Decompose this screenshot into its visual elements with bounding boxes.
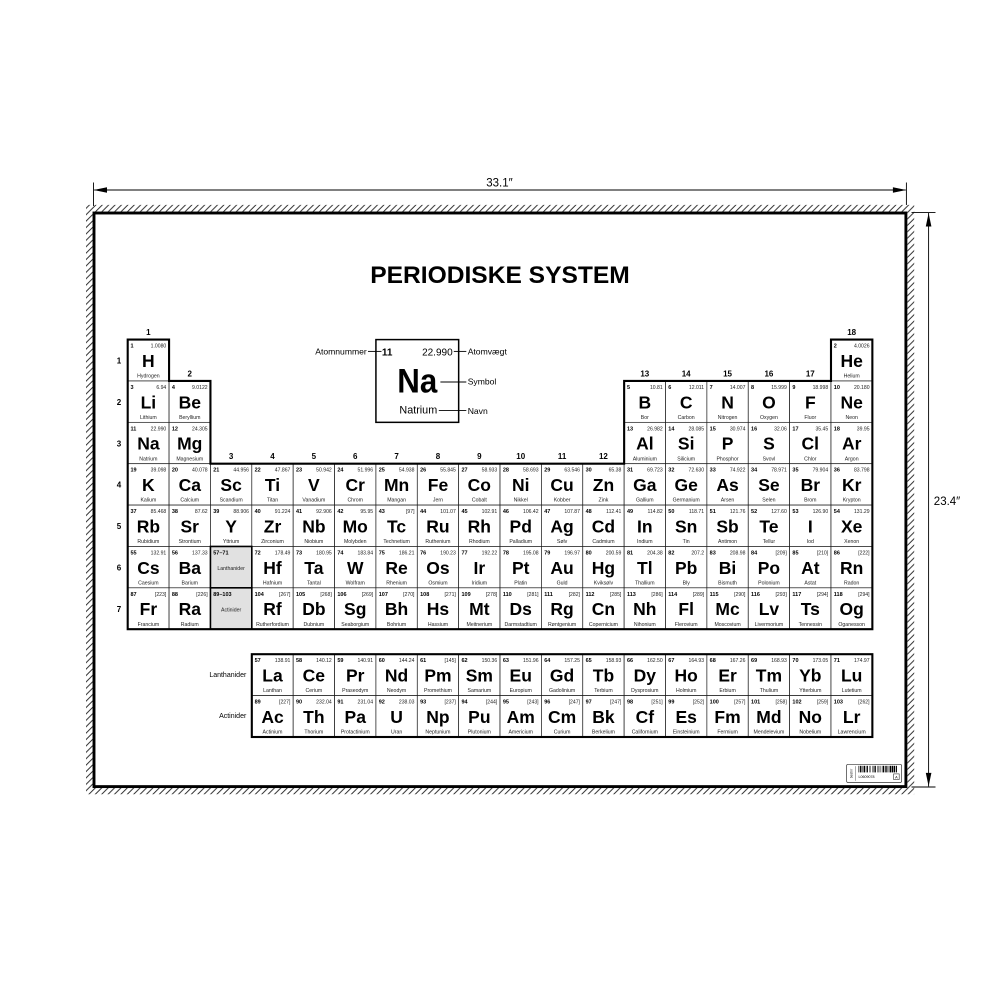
- svg-text:Bor: Bor: [641, 415, 649, 421]
- svg-text:[294]: [294]: [817, 592, 829, 598]
- svg-text:Ds: Ds: [510, 599, 533, 619]
- svg-text:77: 77: [461, 550, 467, 556]
- svg-text:74.922: 74.922: [730, 468, 746, 474]
- svg-text:10: 10: [834, 385, 840, 391]
- svg-text:127.60: 127.60: [771, 509, 787, 515]
- svg-text:Krypton: Krypton: [843, 498, 861, 504]
- svg-text:1.0080: 1.0080: [151, 344, 167, 350]
- svg-text:Zirconium: Zirconium: [261, 539, 284, 545]
- svg-text:Lanthanider: Lanthanider: [217, 566, 245, 572]
- svg-text:Curium: Curium: [554, 730, 571, 736]
- svg-text:95: 95: [503, 700, 509, 706]
- svg-text:Au: Au: [550, 558, 573, 578]
- svg-text:6.94: 6.94: [156, 385, 166, 391]
- svg-text:98: 98: [627, 700, 633, 706]
- svg-text:22.990: 22.990: [151, 426, 167, 432]
- svg-text:Mc: Mc: [715, 599, 740, 619]
- svg-text:79: 79: [544, 550, 550, 556]
- svg-text:Røntgenium: Røntgenium: [548, 622, 576, 628]
- svg-text:168.93: 168.93: [771, 658, 787, 664]
- svg-text:Br: Br: [801, 475, 821, 495]
- svg-text:Palladium: Palladium: [509, 539, 532, 545]
- svg-text:Neon: Neon: [845, 415, 858, 421]
- svg-text:87: 87: [131, 592, 137, 598]
- svg-text:7: 7: [394, 452, 399, 461]
- svg-text:U: U: [390, 707, 403, 727]
- svg-text:126.90: 126.90: [813, 509, 829, 515]
- svg-text:195.08: 195.08: [523, 550, 539, 556]
- svg-text:8: 8: [436, 452, 441, 461]
- svg-text:118: 118: [834, 592, 843, 598]
- svg-text:Ca: Ca: [179, 475, 202, 495]
- svg-text:1: 1: [146, 328, 151, 337]
- svg-text:84: 84: [751, 550, 758, 556]
- svg-text:Sm: Sm: [466, 666, 493, 686]
- svg-text:Magnesium: Magnesium: [176, 456, 203, 462]
- svg-text:16: 16: [764, 369, 773, 378]
- svg-text:118.71: 118.71: [689, 509, 704, 515]
- svg-text:Bly: Bly: [683, 580, 691, 586]
- svg-text:La: La: [262, 666, 283, 686]
- svg-text:Mn: Mn: [384, 475, 409, 495]
- svg-text:Pa: Pa: [345, 707, 367, 727]
- svg-text:Yb: Yb: [799, 666, 821, 686]
- svg-text:Fl: Fl: [678, 599, 694, 619]
- svg-text:[281]: [281]: [527, 592, 539, 598]
- svg-text:[222]: [222]: [858, 550, 870, 556]
- svg-text:85.468: 85.468: [151, 509, 167, 515]
- svg-text:Niobium: Niobium: [304, 539, 323, 545]
- svg-text:S: S: [763, 434, 775, 454]
- svg-text:Rutherfordium: Rutherfordium: [256, 622, 289, 628]
- svg-text:Lutetium: Lutetium: [842, 688, 862, 694]
- svg-text:15: 15: [723, 369, 732, 378]
- svg-text:200.59: 200.59: [606, 550, 622, 556]
- svg-text:89: 89: [255, 700, 261, 706]
- svg-text:Nobelium: Nobelium: [799, 730, 821, 736]
- svg-text:102: 102: [792, 700, 801, 706]
- svg-text:151.96: 151.96: [523, 658, 539, 664]
- svg-text:22.990: 22.990: [422, 347, 453, 358]
- svg-text:[278]: [278]: [486, 592, 498, 598]
- svg-text:31: 31: [627, 468, 633, 474]
- svg-text:Rn: Rn: [840, 558, 863, 578]
- svg-text:78: 78: [503, 550, 509, 556]
- svg-text:K: K: [142, 475, 155, 495]
- svg-text:64: 64: [544, 658, 551, 664]
- svg-text:[243]: [243]: [527, 700, 539, 706]
- svg-text:Erbium: Erbium: [719, 688, 735, 694]
- svg-text:63.546: 63.546: [564, 468, 580, 474]
- svg-text:Natrium: Natrium: [139, 456, 157, 462]
- svg-text:Ne: Ne: [840, 392, 863, 412]
- svg-text:Tl: Tl: [637, 558, 653, 578]
- svg-text:Na: Na: [397, 363, 438, 401]
- svg-text:18: 18: [847, 328, 856, 337]
- svg-text:108: 108: [420, 592, 429, 598]
- svg-text:174.97: 174.97: [854, 658, 870, 664]
- svg-text:Actinider: Actinider: [219, 713, 247, 720]
- svg-text:162.50: 162.50: [647, 658, 663, 664]
- svg-text:Tin: Tin: [683, 539, 690, 545]
- svg-text:Er: Er: [718, 666, 737, 686]
- svg-text:Flerovium: Flerovium: [675, 622, 698, 628]
- svg-text:178.49: 178.49: [275, 550, 291, 556]
- svg-text:51.996: 51.996: [358, 468, 374, 474]
- svg-text:231.04: 231.04: [358, 700, 374, 706]
- svg-text:Lanthanider: Lanthanider: [209, 672, 247, 679]
- svg-text:Plutonium: Plutonium: [468, 730, 491, 736]
- svg-text:16: 16: [751, 426, 757, 432]
- svg-text:45: 45: [461, 509, 467, 515]
- svg-text:Americium: Americium: [508, 730, 533, 736]
- svg-text:[268]: [268]: [320, 592, 332, 598]
- svg-text:Ba: Ba: [179, 558, 202, 578]
- svg-text:Bi: Bi: [719, 558, 737, 578]
- svg-text:Mendelevium: Mendelevium: [754, 730, 785, 736]
- svg-text:69.723: 69.723: [647, 468, 663, 474]
- svg-text:7: 7: [117, 605, 122, 614]
- svg-text:75: 75: [379, 550, 385, 556]
- svg-text:2: 2: [834, 344, 837, 350]
- svg-text:Chlor: Chlor: [804, 456, 817, 462]
- svg-text:101.07: 101.07: [440, 509, 456, 515]
- svg-text:5: 5: [117, 522, 122, 531]
- svg-text:37: 37: [131, 509, 137, 515]
- svg-text:N: N: [721, 392, 734, 412]
- svg-text:196.97: 196.97: [564, 550, 580, 556]
- svg-text:238.03: 238.03: [399, 700, 415, 706]
- svg-text:Thulium: Thulium: [760, 688, 778, 694]
- svg-text:43: 43: [379, 509, 385, 515]
- svg-text:Mangan: Mangan: [387, 498, 406, 504]
- svg-text:[282]: [282]: [569, 592, 581, 598]
- svg-text:40.078: 40.078: [192, 468, 208, 474]
- svg-text:14: 14: [682, 369, 691, 378]
- svg-text:36: 36: [834, 468, 840, 474]
- svg-text:44: 44: [420, 509, 427, 515]
- svg-text:bestnr: bestnr: [849, 768, 853, 778]
- svg-text:[97]: [97]: [406, 509, 415, 515]
- svg-text:Radon: Radon: [844, 580, 859, 586]
- svg-text:49: 49: [627, 509, 633, 515]
- svg-text:6: 6: [668, 385, 671, 391]
- svg-text:[237]: [237]: [445, 700, 457, 706]
- svg-text:Es: Es: [675, 707, 697, 727]
- svg-text:100: 100: [710, 700, 719, 706]
- svg-text:4: 4: [270, 452, 275, 461]
- svg-text:Svovl: Svovl: [763, 456, 776, 462]
- svg-text:232.04: 232.04: [316, 700, 332, 706]
- svg-text:Meitnerium: Meitnerium: [467, 622, 493, 628]
- svg-text:[258]: [258]: [775, 700, 787, 706]
- svg-text:83.798: 83.798: [854, 468, 870, 474]
- svg-text:H: H: [142, 351, 155, 371]
- svg-text:65.38: 65.38: [609, 468, 622, 474]
- svg-text:59: 59: [337, 658, 343, 664]
- svg-text:9: 9: [792, 385, 795, 391]
- svg-text:4: 4: [117, 481, 122, 490]
- svg-text:Md: Md: [756, 707, 781, 727]
- svg-text:113: 113: [627, 592, 636, 598]
- svg-text:No: No: [799, 707, 822, 727]
- svg-text:15: 15: [710, 426, 716, 432]
- svg-text:19: 19: [131, 468, 137, 474]
- svg-text:Fr: Fr: [140, 599, 158, 619]
- svg-text:Gallium: Gallium: [636, 498, 654, 504]
- svg-text:Polonium: Polonium: [758, 580, 780, 586]
- svg-text:Terbium: Terbium: [594, 688, 612, 694]
- svg-text:Re: Re: [385, 558, 408, 578]
- svg-text:110: 110: [503, 592, 512, 598]
- svg-text:89–103: 89–103: [213, 592, 231, 598]
- svg-text:96: 96: [544, 700, 550, 706]
- svg-text:52: 52: [751, 509, 757, 515]
- svg-text:140.91: 140.91: [358, 658, 374, 664]
- svg-text:F: F: [805, 392, 816, 412]
- svg-text:Bk: Bk: [592, 707, 615, 727]
- svg-text:Cadmium: Cadmium: [592, 539, 614, 545]
- svg-text:Strontium: Strontium: [179, 539, 201, 545]
- svg-text:Cs: Cs: [137, 558, 160, 578]
- svg-text:[289]: [289]: [693, 592, 705, 598]
- svg-text:Os: Os: [426, 558, 450, 578]
- svg-text:44.956: 44.956: [233, 468, 249, 474]
- svg-text:Mt: Mt: [469, 599, 490, 619]
- svg-text:2: 2: [188, 369, 193, 378]
- svg-text:30.974: 30.974: [730, 426, 746, 432]
- svg-text:34: 34: [751, 468, 758, 474]
- svg-text:Y: Y: [225, 516, 237, 536]
- svg-text:5: 5: [627, 385, 630, 391]
- svg-text:83: 83: [710, 550, 716, 556]
- svg-text:Neodym: Neodym: [387, 688, 406, 694]
- svg-text:Calcium: Calcium: [180, 498, 199, 504]
- svg-text:Pr: Pr: [346, 666, 365, 686]
- svg-text:Kr: Kr: [842, 475, 862, 495]
- svg-text:PERIODISKE SYSTEM: PERIODISKE SYSTEM: [370, 262, 630, 289]
- svg-text:Xenon: Xenon: [844, 539, 859, 545]
- svg-text:Fermium: Fermium: [717, 730, 737, 736]
- svg-text:Actinider: Actinider: [221, 608, 241, 614]
- svg-text:Rg: Rg: [550, 599, 573, 619]
- svg-text:As: As: [716, 475, 739, 495]
- svg-text:Molybden: Molybden: [344, 539, 367, 545]
- svg-text:Bohrium: Bohrium: [387, 622, 406, 628]
- svg-text:Ni: Ni: [512, 475, 530, 495]
- svg-text:Atomnummer: Atomnummer: [315, 347, 367, 357]
- svg-text:Lawrencium: Lawrencium: [838, 730, 866, 736]
- svg-text:[290]: [290]: [734, 592, 746, 598]
- svg-text:[285]: [285]: [610, 592, 622, 598]
- svg-text:Aluminium: Aluminium: [633, 456, 657, 462]
- svg-text:17: 17: [792, 426, 798, 432]
- svg-text:Fluor: Fluor: [804, 415, 816, 421]
- svg-text:81: 81: [627, 550, 633, 556]
- svg-text:35.45: 35.45: [815, 426, 828, 432]
- svg-text:Db: Db: [302, 599, 325, 619]
- svg-text:Kalium: Kalium: [140, 498, 156, 504]
- svg-text:12: 12: [172, 426, 178, 432]
- svg-text:[270]: [270]: [403, 592, 415, 598]
- svg-text:Thorium: Thorium: [304, 730, 323, 736]
- svg-text:54: 54: [834, 509, 841, 515]
- svg-text:Og: Og: [840, 599, 864, 619]
- svg-text:Titan: Titan: [267, 498, 278, 504]
- svg-text:Arsen: Arsen: [721, 498, 735, 504]
- svg-text:Nihonium: Nihonium: [634, 622, 656, 628]
- svg-text:114: 114: [668, 592, 678, 598]
- svg-text:115: 115: [710, 592, 719, 598]
- svg-text:Ag: Ag: [550, 516, 573, 536]
- svg-text:Samarium: Samarium: [468, 688, 492, 694]
- svg-text:24.305: 24.305: [192, 426, 208, 432]
- svg-text:Barium: Barium: [182, 580, 198, 586]
- svg-text:Lv: Lv: [759, 599, 780, 619]
- svg-text:Germanium: Germanium: [673, 498, 700, 504]
- svg-text:95.95: 95.95: [360, 509, 373, 515]
- svg-text:121.76: 121.76: [730, 509, 746, 515]
- svg-text:[227]: [227]: [279, 700, 291, 706]
- svg-text:Cerium: Cerium: [306, 688, 323, 694]
- svg-text:35: 35: [792, 468, 798, 474]
- svg-text:Guld: Guld: [557, 580, 568, 586]
- svg-text:Cd: Cd: [592, 516, 615, 536]
- svg-text:3: 3: [117, 439, 122, 448]
- svg-text:Rf: Rf: [263, 599, 282, 619]
- svg-text:Kviksølv: Kviksølv: [594, 580, 614, 586]
- svg-text:Dysprosium: Dysprosium: [631, 688, 658, 694]
- svg-text:53: 53: [792, 509, 798, 515]
- svg-text:Moscovium: Moscovium: [714, 622, 740, 628]
- svg-text:112: 112: [586, 592, 595, 598]
- svg-text:164.93: 164.93: [688, 658, 704, 664]
- svg-text:74: 74: [337, 550, 344, 556]
- svg-text:109: 109: [461, 592, 470, 598]
- svg-text:W: W: [347, 558, 364, 578]
- svg-text:73: 73: [296, 550, 302, 556]
- svg-text:Protactinium: Protactinium: [341, 730, 370, 736]
- svg-text:Th: Th: [303, 707, 324, 727]
- svg-text:Nb: Nb: [302, 516, 325, 536]
- svg-text:[223]: [223]: [155, 592, 167, 598]
- svg-text:Francium: Francium: [138, 622, 160, 628]
- svg-text:Rhenium: Rhenium: [386, 580, 407, 586]
- svg-text:At: At: [801, 558, 820, 578]
- svg-text:[294]: [294]: [858, 592, 870, 598]
- svg-text:Bh: Bh: [385, 599, 408, 619]
- svg-text:114.82: 114.82: [648, 509, 663, 515]
- svg-text:Ho: Ho: [675, 666, 698, 686]
- svg-text:Pu: Pu: [468, 707, 490, 727]
- svg-text:Argon: Argon: [845, 456, 859, 462]
- svg-text:Hafnium: Hafnium: [263, 580, 282, 586]
- svg-text:Ts: Ts: [801, 599, 820, 619]
- svg-text:Kobber: Kobber: [554, 498, 571, 504]
- svg-text:Astat: Astat: [804, 580, 816, 586]
- svg-text:80: 80: [586, 550, 592, 556]
- svg-text:Einsteinium: Einsteinium: [673, 730, 700, 736]
- svg-text:62: 62: [461, 658, 467, 664]
- svg-text:24: 24: [337, 468, 344, 474]
- svg-text:Cu: Cu: [550, 475, 573, 495]
- svg-text:Mo: Mo: [343, 516, 368, 536]
- svg-text:Rhodium: Rhodium: [469, 539, 490, 545]
- svg-text:107: 107: [379, 592, 388, 598]
- svg-text:Pt: Pt: [512, 558, 530, 578]
- svg-text:94: 94: [461, 700, 468, 706]
- svg-text:192.22: 192.22: [482, 550, 498, 556]
- svg-text:10.81: 10.81: [650, 385, 663, 391]
- svg-text:20: 20: [172, 468, 178, 474]
- svg-text:58.693: 58.693: [523, 468, 539, 474]
- svg-text:106.42: 106.42: [523, 509, 539, 515]
- svg-text:33.1″: 33.1″: [486, 177, 512, 189]
- svg-text:5: 5: [312, 452, 317, 461]
- svg-text:Holmium: Holmium: [676, 688, 696, 694]
- svg-text:72.630: 72.630: [688, 468, 704, 474]
- svg-text:Ce: Ce: [303, 666, 326, 686]
- svg-text:90: 90: [296, 700, 302, 706]
- svg-text:Phosphor: Phosphor: [716, 456, 738, 462]
- svg-text:101: 101: [751, 700, 760, 706]
- svg-text:50: 50: [668, 509, 674, 515]
- svg-text:Tennessin: Tennessin: [799, 622, 822, 628]
- svg-text:103: 103: [834, 700, 843, 706]
- svg-text:48: 48: [586, 509, 592, 515]
- svg-text:3: 3: [229, 452, 234, 461]
- svg-text:Cn: Cn: [592, 599, 615, 619]
- svg-text:18: 18: [834, 426, 840, 432]
- svg-text:Praseodym: Praseodym: [342, 688, 368, 694]
- svg-text:[251]: [251]: [651, 700, 663, 706]
- svg-text:Atomvægt: Atomvægt: [468, 347, 508, 357]
- svg-text:186.21: 186.21: [399, 550, 415, 556]
- svg-text:Yttrium: Yttrium: [223, 539, 239, 545]
- svg-text:11: 11: [131, 426, 137, 432]
- svg-text:Lanthan: Lanthan: [263, 688, 282, 694]
- svg-text:Osmium: Osmium: [428, 580, 447, 586]
- svg-text:[293]: [293]: [775, 592, 787, 598]
- svg-text:117: 117: [792, 592, 801, 598]
- svg-text:18.998: 18.998: [813, 385, 829, 391]
- svg-text:Wolfram: Wolfram: [346, 580, 365, 586]
- svg-text:71: 71: [834, 658, 840, 664]
- svg-text:26.982: 26.982: [647, 426, 663, 432]
- svg-text:Beryllium: Beryllium: [179, 415, 200, 421]
- svg-text:112.41: 112.41: [606, 509, 621, 515]
- svg-text:13: 13: [627, 426, 633, 432]
- svg-text:[247]: [247]: [610, 700, 622, 706]
- svg-text:Selen: Selen: [762, 498, 775, 504]
- svg-text:26: 26: [420, 468, 426, 474]
- svg-text:157.25: 157.25: [564, 658, 580, 664]
- svg-text:[262]: [262]: [858, 700, 870, 706]
- svg-text:Ac: Ac: [261, 707, 284, 727]
- svg-text:Ar: Ar: [842, 434, 862, 454]
- svg-text:Oganesson: Oganesson: [838, 622, 865, 628]
- svg-text:22: 22: [255, 468, 261, 474]
- svg-text:28: 28: [503, 468, 509, 474]
- svg-text:Ti: Ti: [265, 475, 280, 495]
- svg-text:65: 65: [586, 658, 592, 664]
- svg-text:Mg: Mg: [177, 434, 202, 454]
- svg-text:Chrom: Chrom: [347, 498, 363, 504]
- svg-text:68: 68: [710, 658, 716, 664]
- svg-text:Lr: Lr: [843, 707, 861, 727]
- svg-text:204.38: 204.38: [647, 550, 663, 556]
- svg-text:61: 61: [420, 658, 426, 664]
